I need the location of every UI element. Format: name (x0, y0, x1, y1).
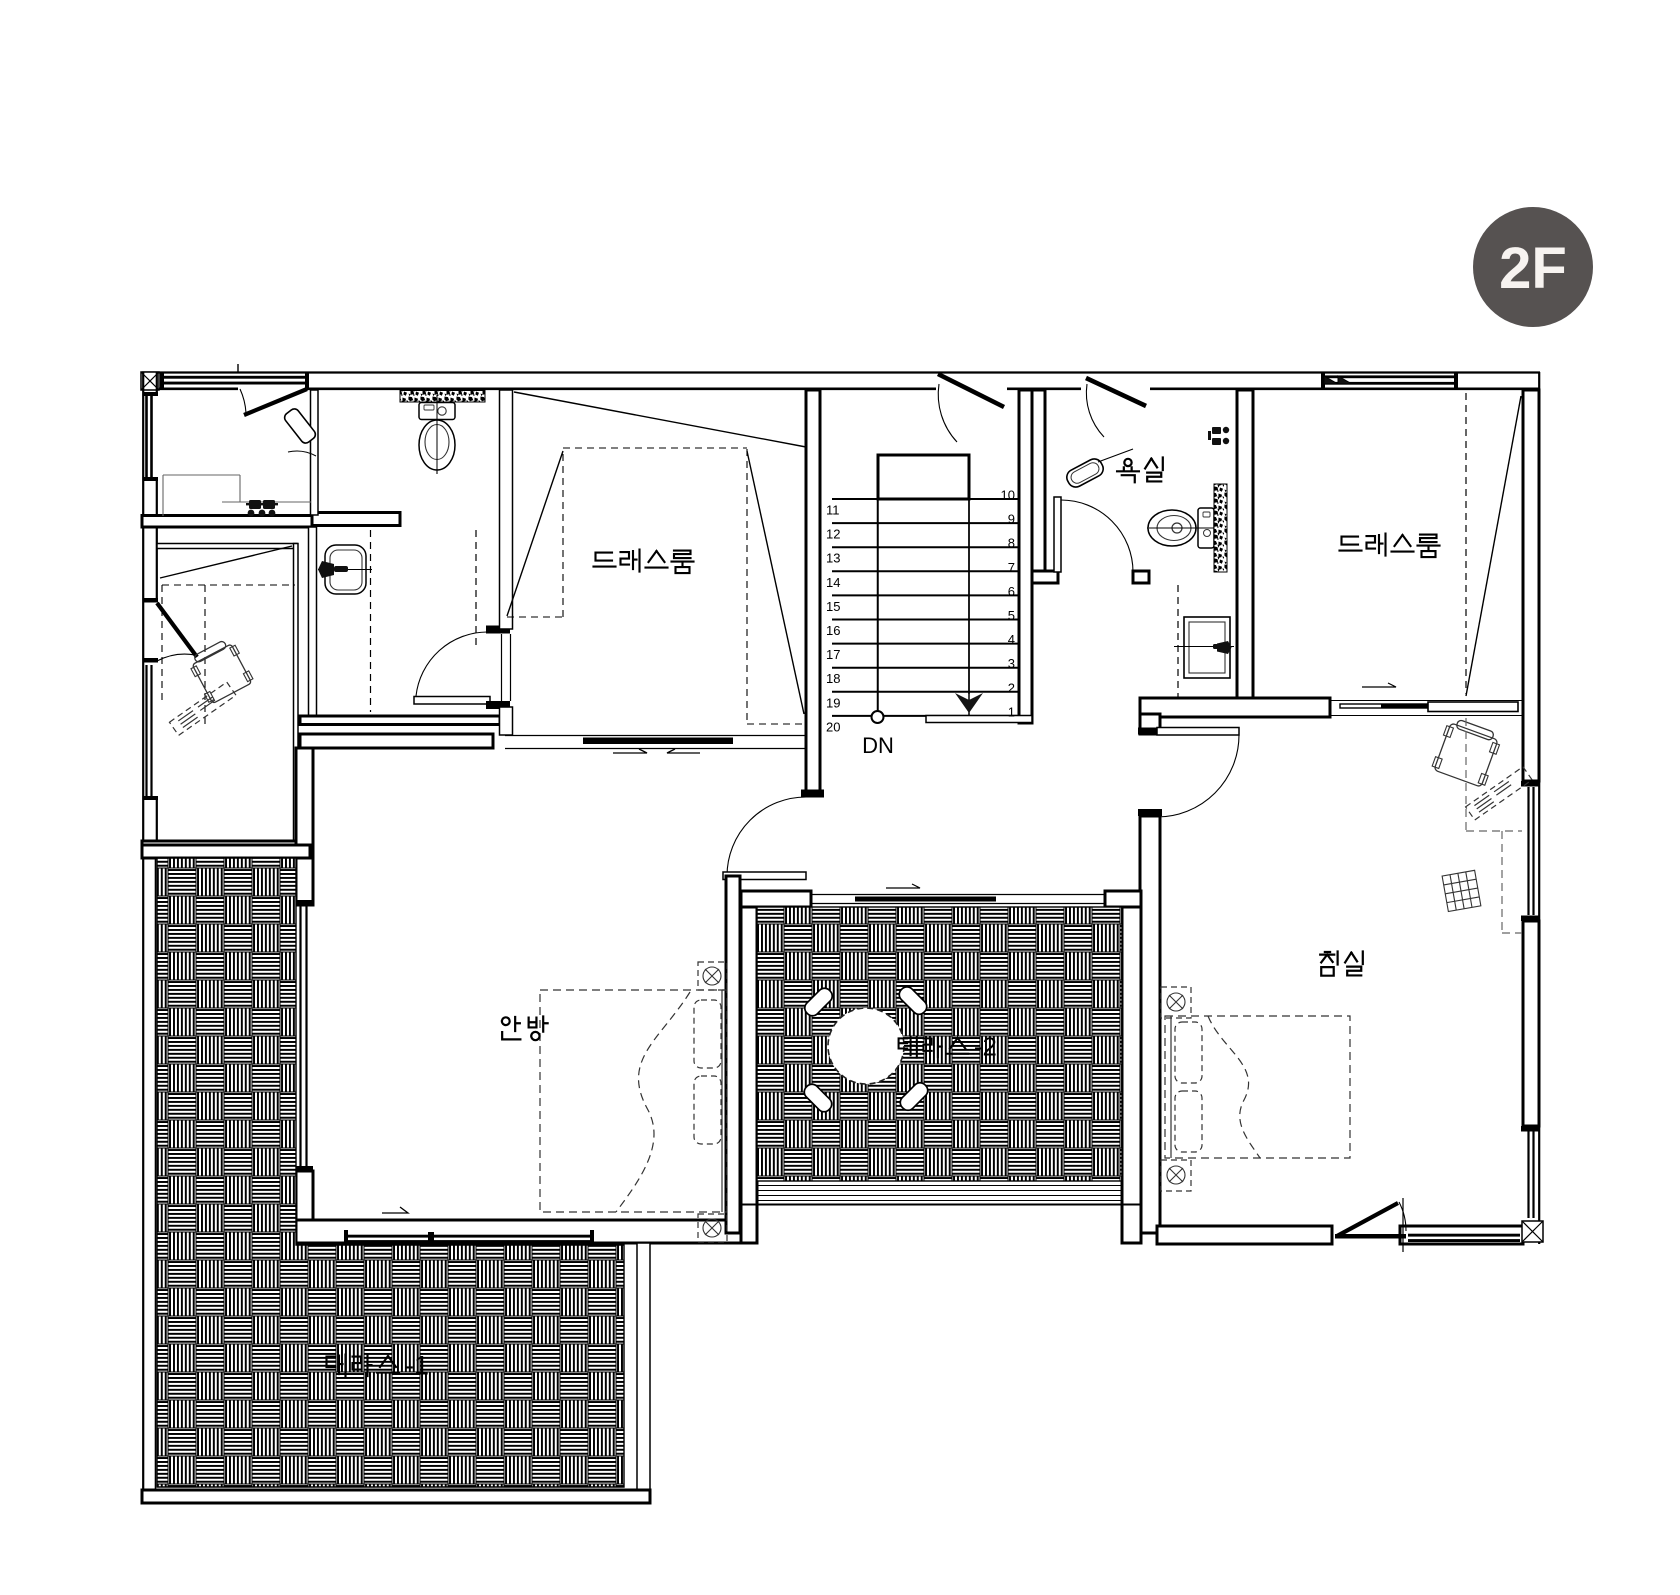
svg-text:12: 12 (826, 527, 840, 542)
svg-text:20: 20 (826, 719, 840, 734)
svg-text:2F: 2F (1499, 236, 1567, 301)
svg-text:6: 6 (1008, 584, 1015, 599)
svg-text:4: 4 (1008, 632, 1015, 647)
svg-text:16: 16 (826, 623, 840, 638)
svg-text:1: 1 (1008, 704, 1015, 719)
svg-text:17: 17 (826, 647, 840, 662)
svg-text:11: 11 (826, 503, 840, 518)
svg-text:8: 8 (1008, 536, 1015, 551)
svg-text:2: 2 (1008, 680, 1015, 695)
svg-text:-2: -2 (974, 1034, 997, 1062)
svg-text:DN: DN (862, 733, 894, 758)
svg-text:15: 15 (826, 599, 840, 614)
svg-text:10: 10 (1001, 488, 1015, 503)
svg-text:7: 7 (1008, 560, 1015, 575)
svg-text:18: 18 (826, 671, 840, 686)
svg-text:9: 9 (1008, 512, 1015, 527)
svg-text:19: 19 (826, 695, 840, 710)
svg-text:14: 14 (826, 575, 840, 590)
svg-text:13: 13 (826, 551, 840, 566)
svg-text:5: 5 (1008, 608, 1015, 623)
svg-text:3: 3 (1008, 656, 1015, 671)
svg-text:-1: -1 (405, 1351, 429, 1381)
